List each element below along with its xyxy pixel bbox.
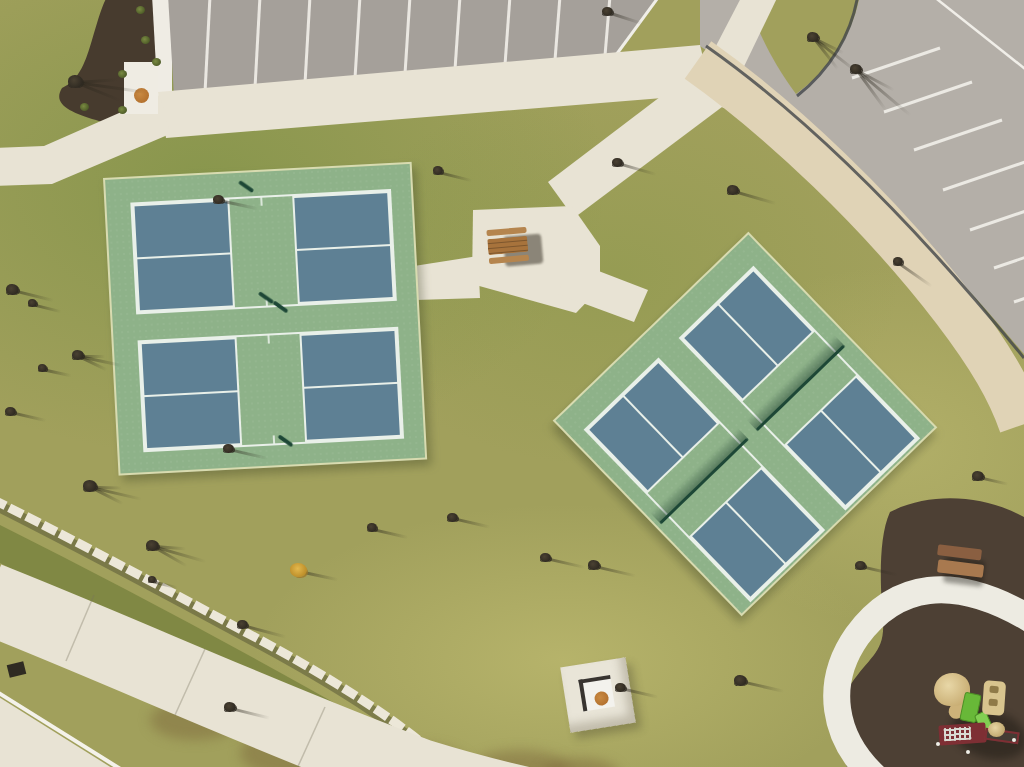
fire-pit-pad [560,657,636,733]
small-tree [6,284,19,297]
tree-canopy [223,444,234,453]
post [1012,738,1016,742]
court-service-area [132,199,235,312]
small-tree [433,166,443,176]
tree-canopy [612,158,623,167]
aerial-park-photo [0,0,1024,767]
tree-canopy [855,561,866,570]
post [966,750,970,754]
small-tree [807,32,819,44]
fire-pit-ring [594,690,610,706]
court-centerline [137,252,230,259]
small-tree [367,523,377,533]
playground-structure [922,668,1024,767]
sidewalk-to-court2 [558,260,648,322]
small-tree [734,675,747,688]
small-tree [223,444,234,455]
play-deck [938,722,986,745]
park-bench [934,543,986,587]
sidewalk-to-court1 [414,256,480,300]
tree-canopy [224,702,236,712]
small-tree [213,195,224,206]
small-tree [588,560,600,572]
tree-canopy [615,683,626,692]
shrub [141,36,150,44]
court-centerline [144,390,237,397]
shrub [152,58,161,66]
small-tree [855,561,866,572]
small-tree [727,185,739,197]
court-centerline [821,410,881,472]
court-centerline [623,396,683,458]
tree-canopy [588,560,600,570]
play-tower [982,680,1006,715]
court-centerline [726,502,786,564]
tree-canopy [893,257,903,266]
small-tree [146,540,159,553]
tree-canopy [367,523,377,532]
tower-window [988,699,997,707]
tree-canopy [447,513,458,522]
pickleball-complex-west [103,162,427,476]
tree-canopy [602,7,613,16]
net-line-mark [260,196,263,206]
shrub [80,103,89,111]
tree-canopy [28,299,37,307]
tree-canopy [972,471,984,481]
tree-canopy [433,166,443,175]
tower-window [989,686,998,694]
small-tree [224,702,236,714]
small-tree [28,299,37,308]
net-line-mark [267,334,270,344]
tree-canopy [727,185,739,195]
small-tree [972,471,984,483]
play-dome [988,722,1005,737]
picnic-table [486,226,539,270]
small-tree [83,480,97,494]
tree-canopy [6,284,19,295]
deck-mesh [944,726,972,741]
small-tree [612,158,623,169]
tree-canopy [734,675,747,686]
yellow-shrub [290,563,307,580]
net-line-mark [272,435,275,445]
small-tree [615,683,626,694]
small-tree [540,553,551,564]
tree-canopy [540,553,551,562]
small-tree [602,7,613,18]
shrub [118,70,127,78]
tree-canopy [290,563,307,577]
tree-canopy [237,620,248,629]
tree-canopy [72,350,84,360]
tree-canopy [83,480,97,492]
small-tree [72,350,84,362]
court-centerline [304,382,397,389]
tree-canopy [5,407,16,416]
small-tree [68,75,83,90]
tree-canopy [68,75,83,88]
small-tree [38,364,47,373]
small-tree [447,513,458,524]
tree-canopy [850,64,862,74]
court-centerline [297,244,390,251]
fire-pit-box [578,675,615,712]
court-centerline [718,304,778,366]
court-service-area [292,191,395,304]
shrub [118,106,127,114]
net-post-mark [238,180,254,193]
tree-canopy [213,195,224,204]
post [936,742,940,746]
tree-canopy [38,364,47,372]
shrub [136,6,145,14]
court-service-area [140,337,243,450]
small-tree [148,576,156,584]
pickleball-court [138,327,405,453]
tree-canopy [148,576,156,583]
small-tree [893,257,903,267]
small-tree [237,620,248,631]
tree-canopy [807,32,819,42]
small-tree [5,407,16,418]
small-tree [850,64,862,76]
court-service-area [299,329,402,442]
tree-canopy [146,540,159,551]
